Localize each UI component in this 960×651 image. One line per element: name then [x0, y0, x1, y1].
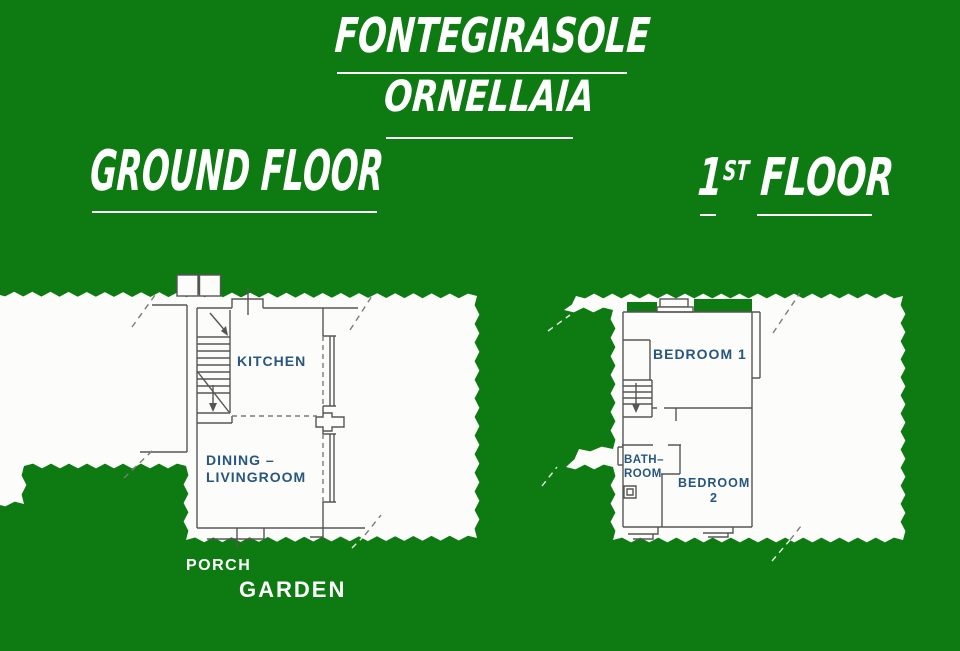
property-name: FONTEGIRASOLE [333, 12, 651, 60]
dining-label-line2: LIVINGROOM [206, 469, 306, 486]
bathroom-label-line2: ROOM [624, 467, 664, 481]
property-subname: ORNELLAIA [383, 76, 596, 119]
dining-label-line1: DINING – [206, 452, 306, 469]
bedroom2-label-line1: BEDROOM [678, 476, 750, 491]
garden-label: GARDEN [239, 579, 346, 601]
first-floor-heading-word: FLOOR [759, 148, 896, 208]
bathroom-label: BATH– ROOM [624, 453, 664, 481]
ground-floor-heading: GROUND FLOOR [89, 144, 385, 200]
first-floor-heading-ordinal: ST [722, 156, 750, 187]
dining-livingroom-label: DINING – LIVINGROOM [206, 452, 306, 486]
bedroom2-label: BEDROOM 2 [678, 476, 750, 507]
first-floor-heading-number: 1 [696, 148, 725, 208]
bedroom1-label: BEDROOM 1 [653, 346, 747, 363]
ground-floor-paper-cutout [0, 292, 479, 543]
bathroom-label-line1: BATH– [624, 453, 664, 467]
first-floor-heading: 1ST FLOOR [696, 152, 895, 204]
bedroom2-label-line2: 2 [678, 491, 750, 506]
floor-plan-poster: FONTEGIRASOLE ORNELLAIA GROUND FLOOR 1ST… [0, 0, 960, 651]
kitchen-label: KITCHEN [237, 353, 306, 370]
porch-label: PORCH [186, 558, 251, 574]
